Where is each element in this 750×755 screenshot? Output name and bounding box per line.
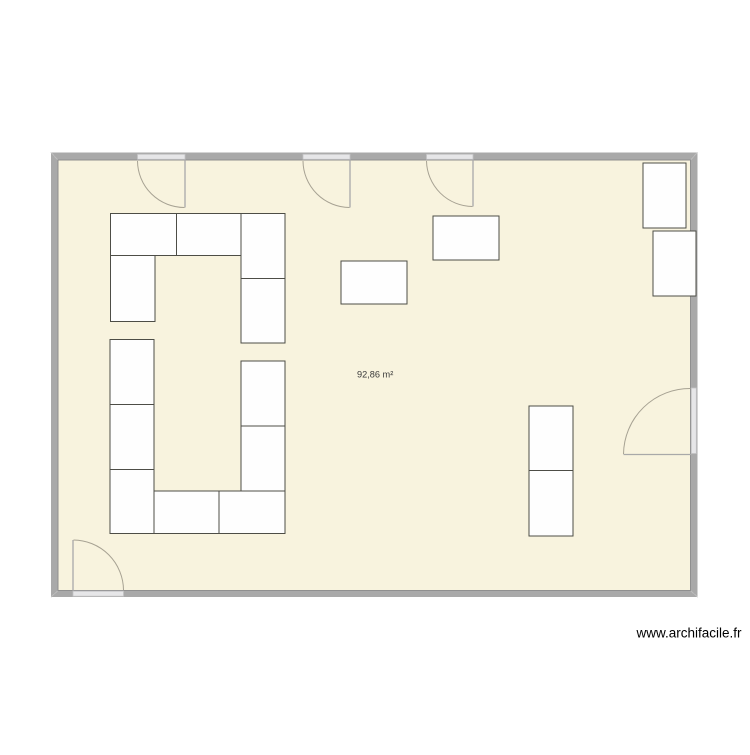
svg-text:www.archifacile.fr: www.archifacile.fr — [636, 626, 743, 641]
svg-text:92,86 m²: 92,86 m² — [357, 370, 393, 380]
